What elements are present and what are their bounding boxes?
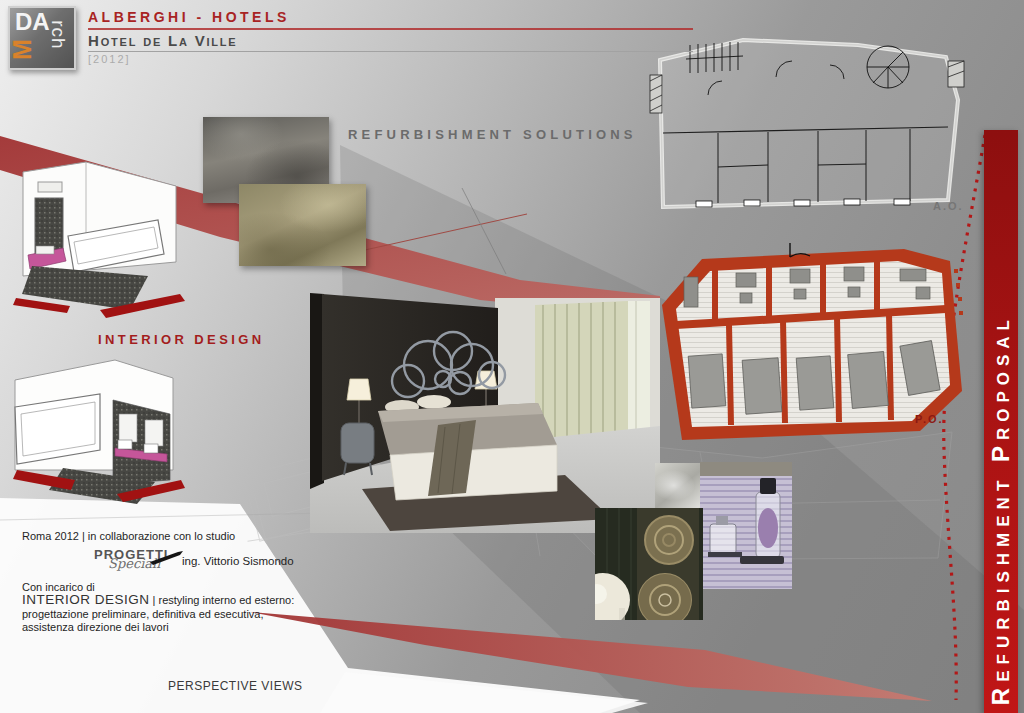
credits-block: Roma 2012 | in collaborazione con lo stu… (22, 530, 310, 635)
header-gray-rule (88, 51, 693, 52)
header-red-rule (88, 28, 693, 30)
bathroom-sketch-1 (8, 160, 198, 325)
proposal-sidebar: Refurbishment Proposal (984, 130, 1018, 713)
logo-text-da: DA (15, 8, 50, 36)
photo-roses-moon-lamp (595, 508, 703, 620)
perspective-views-caption: PERSPECTIVE VIEWS (168, 679, 303, 693)
bathroom-sketch-2 (5, 352, 190, 507)
pen-stroke-icon (150, 551, 184, 565)
assignment-role-line: INTERIOR DESIGN | restyling interno ed e… (22, 593, 310, 608)
bedroom-render (310, 293, 660, 533)
studio-logo: DA M rch (8, 6, 76, 70)
project-year: [2012] (88, 53, 131, 65)
plan-label-post-operam: P.O. (915, 413, 944, 425)
refurbishment-solutions-heading: REFURBISHMENT SOLUTIONS (348, 127, 637, 142)
material-swatch-olive-plaster (239, 184, 366, 266)
plan-label-ante-operam: A.O. (933, 200, 964, 212)
logo-text-rch: rch (47, 20, 69, 49)
engineer-name: ing. Vittorio Sismondo (182, 555, 294, 567)
floor-plan-ante-operam (648, 15, 978, 225)
proposal-sidebar-title: Refurbishment Proposal (987, 314, 1015, 713)
assignment-detail-3: assistenza direzione dei lavori (22, 621, 310, 635)
presentation-board: DA M rch ALBERGHI - HOTELS Hotel de La V… (0, 0, 1024, 713)
assignment-detail-1: | restyling interno ed esterno: (153, 594, 295, 606)
curtain (535, 301, 650, 451)
photo-lavender-tiles-perfume (700, 462, 792, 589)
assignment-role: INTERIOR DESIGN (22, 592, 150, 607)
assignment-detail-2: progettazione preliminare, definitiva ed… (22, 608, 310, 622)
interior-design-heading: INTERIOR DESIGN (98, 332, 265, 347)
category-label: ALBERGHI - HOTELS (88, 9, 290, 25)
logo-text-m: M (8, 39, 37, 60)
collaboration-line: Roma 2012 | in collaborazione con lo stu… (22, 530, 310, 542)
studio-logo-row: PROGETTI Speciali ing. Vittorio Sismondo (22, 545, 310, 575)
project-title: Hotel de La Ville (88, 32, 238, 49)
bed (378, 395, 557, 500)
